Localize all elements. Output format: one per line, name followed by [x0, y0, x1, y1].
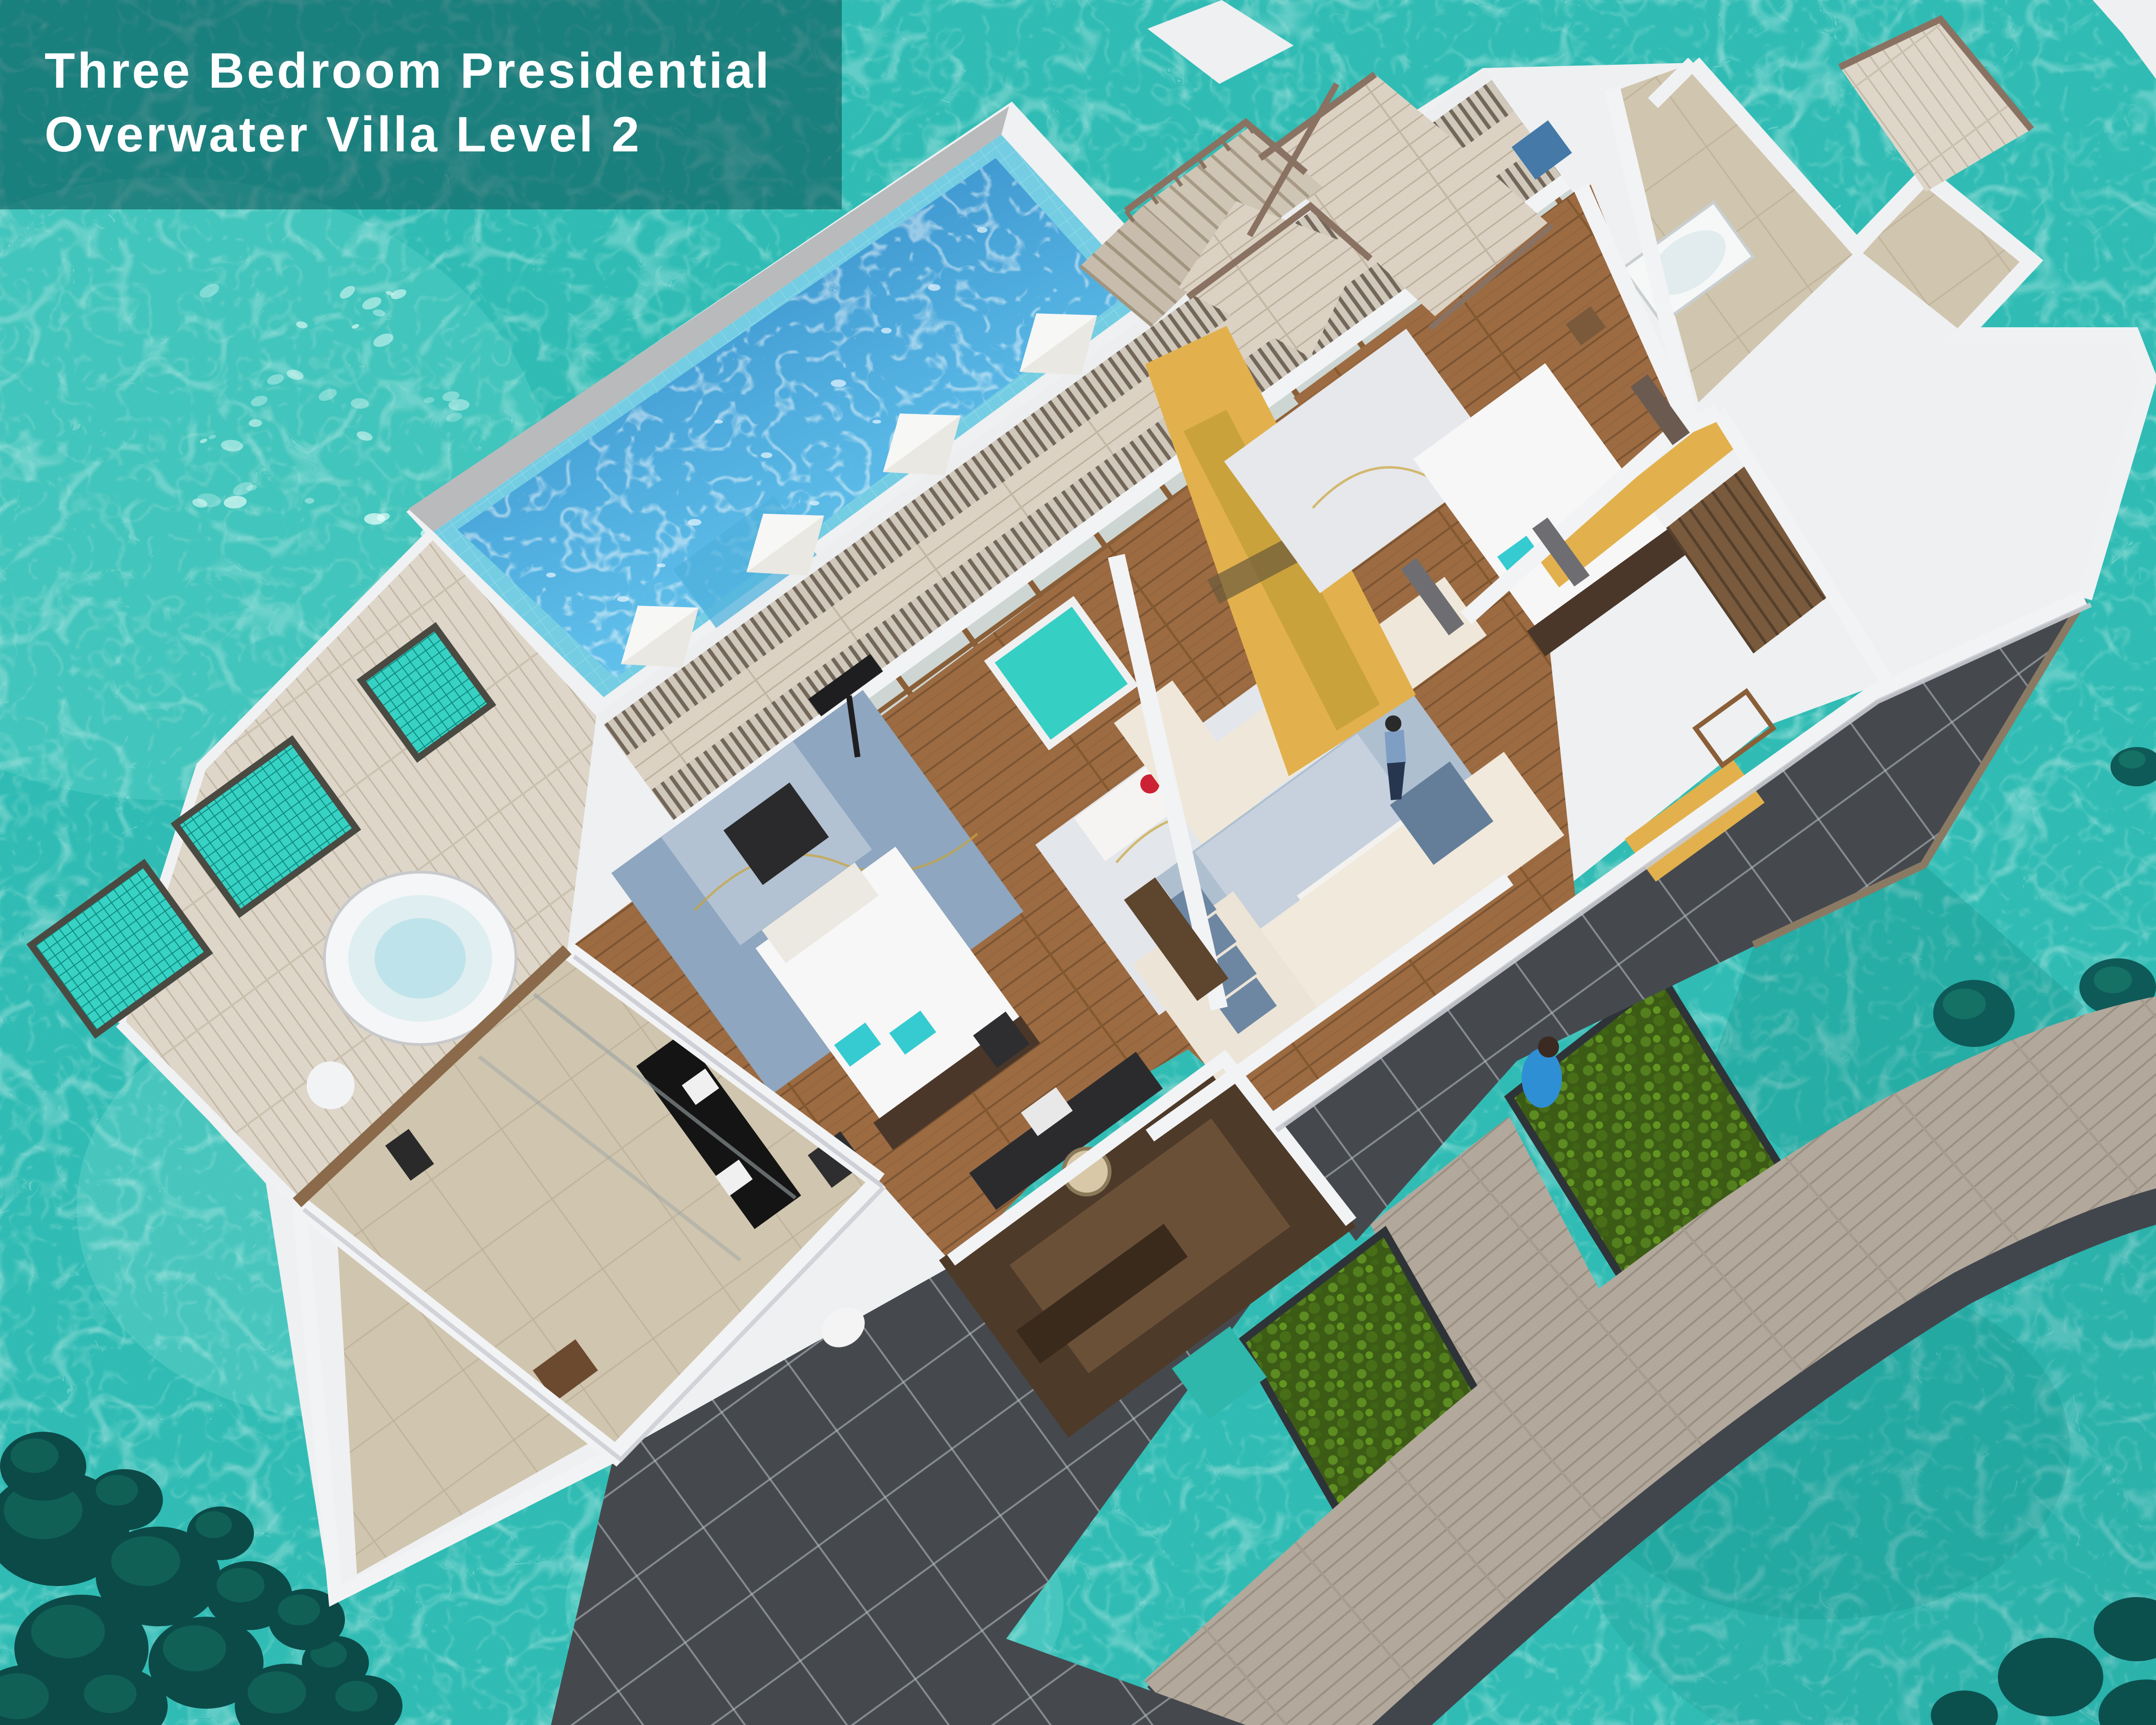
svg-text:Overwater Villa Level 2: Overwater Villa Level 2	[45, 107, 642, 162]
svg-text:Three Bedroom Presidential: Three Bedroom Presidential	[45, 43, 771, 99]
